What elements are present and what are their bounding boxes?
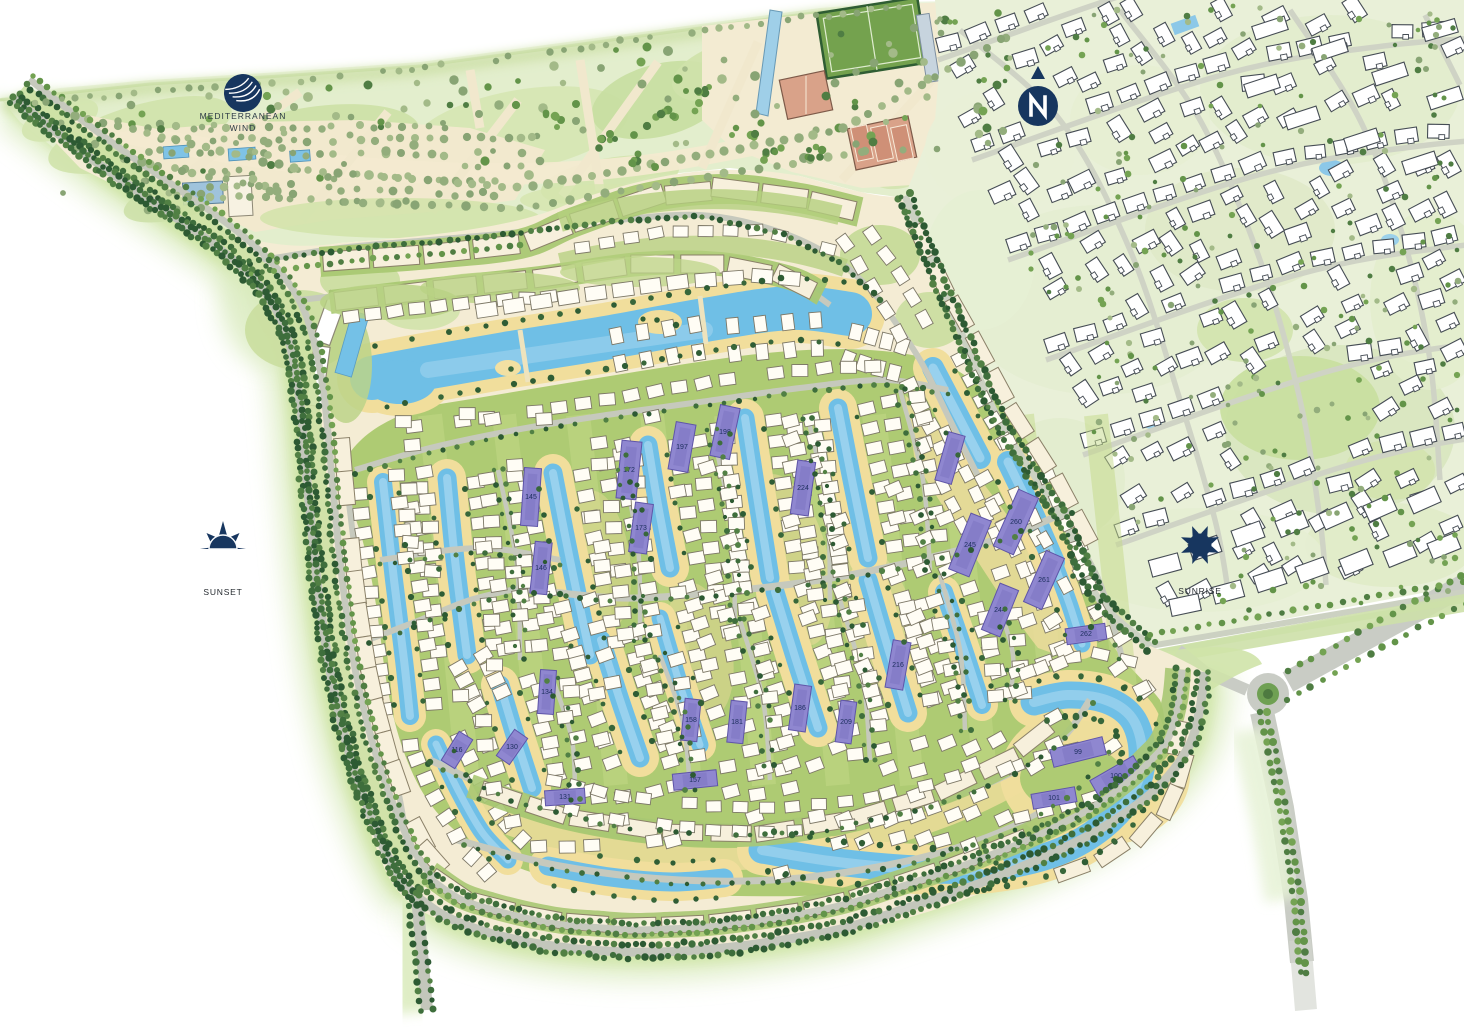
svg-text:224: 224 [797,485,809,492]
svg-text:SUNSET: SUNSET [203,587,242,597]
svg-text:173: 173 [635,525,647,532]
svg-text:158: 158 [685,717,697,724]
svg-text:101: 101 [1048,795,1060,802]
svg-text:145: 145 [525,494,537,501]
svg-text:216: 216 [892,662,904,669]
svg-text:260: 260 [1010,519,1022,526]
svg-text:SUNRISE: SUNRISE [1178,586,1221,596]
svg-text:157: 157 [689,777,701,784]
svg-text:WIND: WIND [230,123,257,133]
svg-text:146: 146 [535,565,547,572]
svg-text:99: 99 [1074,749,1082,756]
svg-text:186: 186 [794,705,806,712]
svg-text:197: 197 [676,444,688,451]
svg-text:MEDITERRANEAN: MEDITERRANEAN [200,111,287,121]
svg-text:181: 181 [731,719,743,726]
svg-text:261: 261 [1038,577,1050,584]
svg-text:262: 262 [1080,631,1092,638]
svg-text:209: 209 [840,719,852,726]
svg-text:130: 130 [506,744,518,751]
